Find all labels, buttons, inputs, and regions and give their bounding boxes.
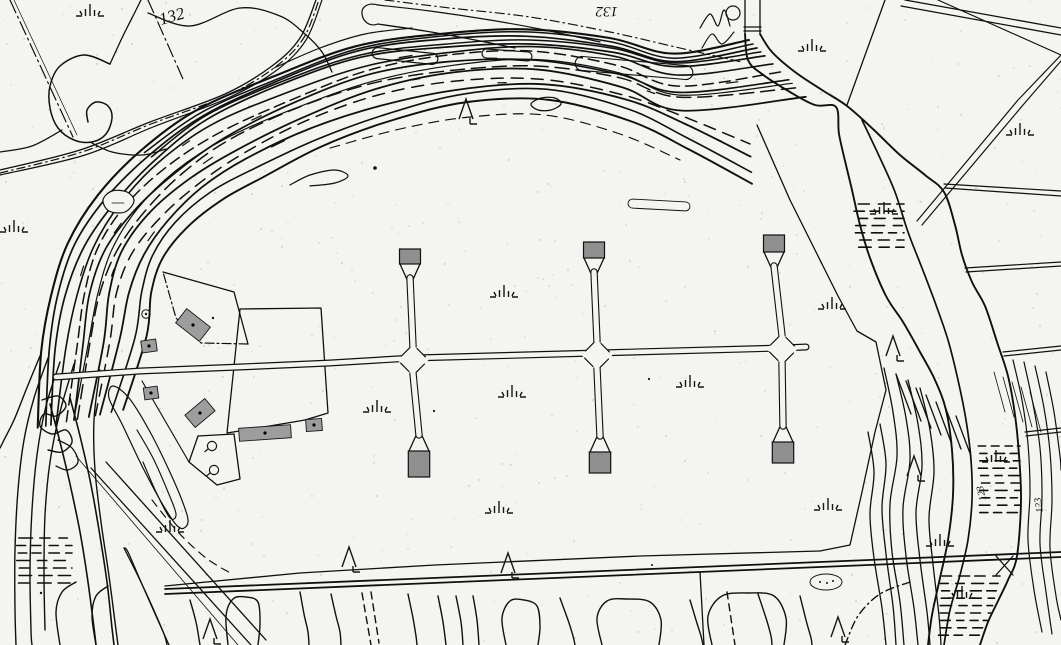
svg-text:132: 132 (595, 3, 618, 19)
